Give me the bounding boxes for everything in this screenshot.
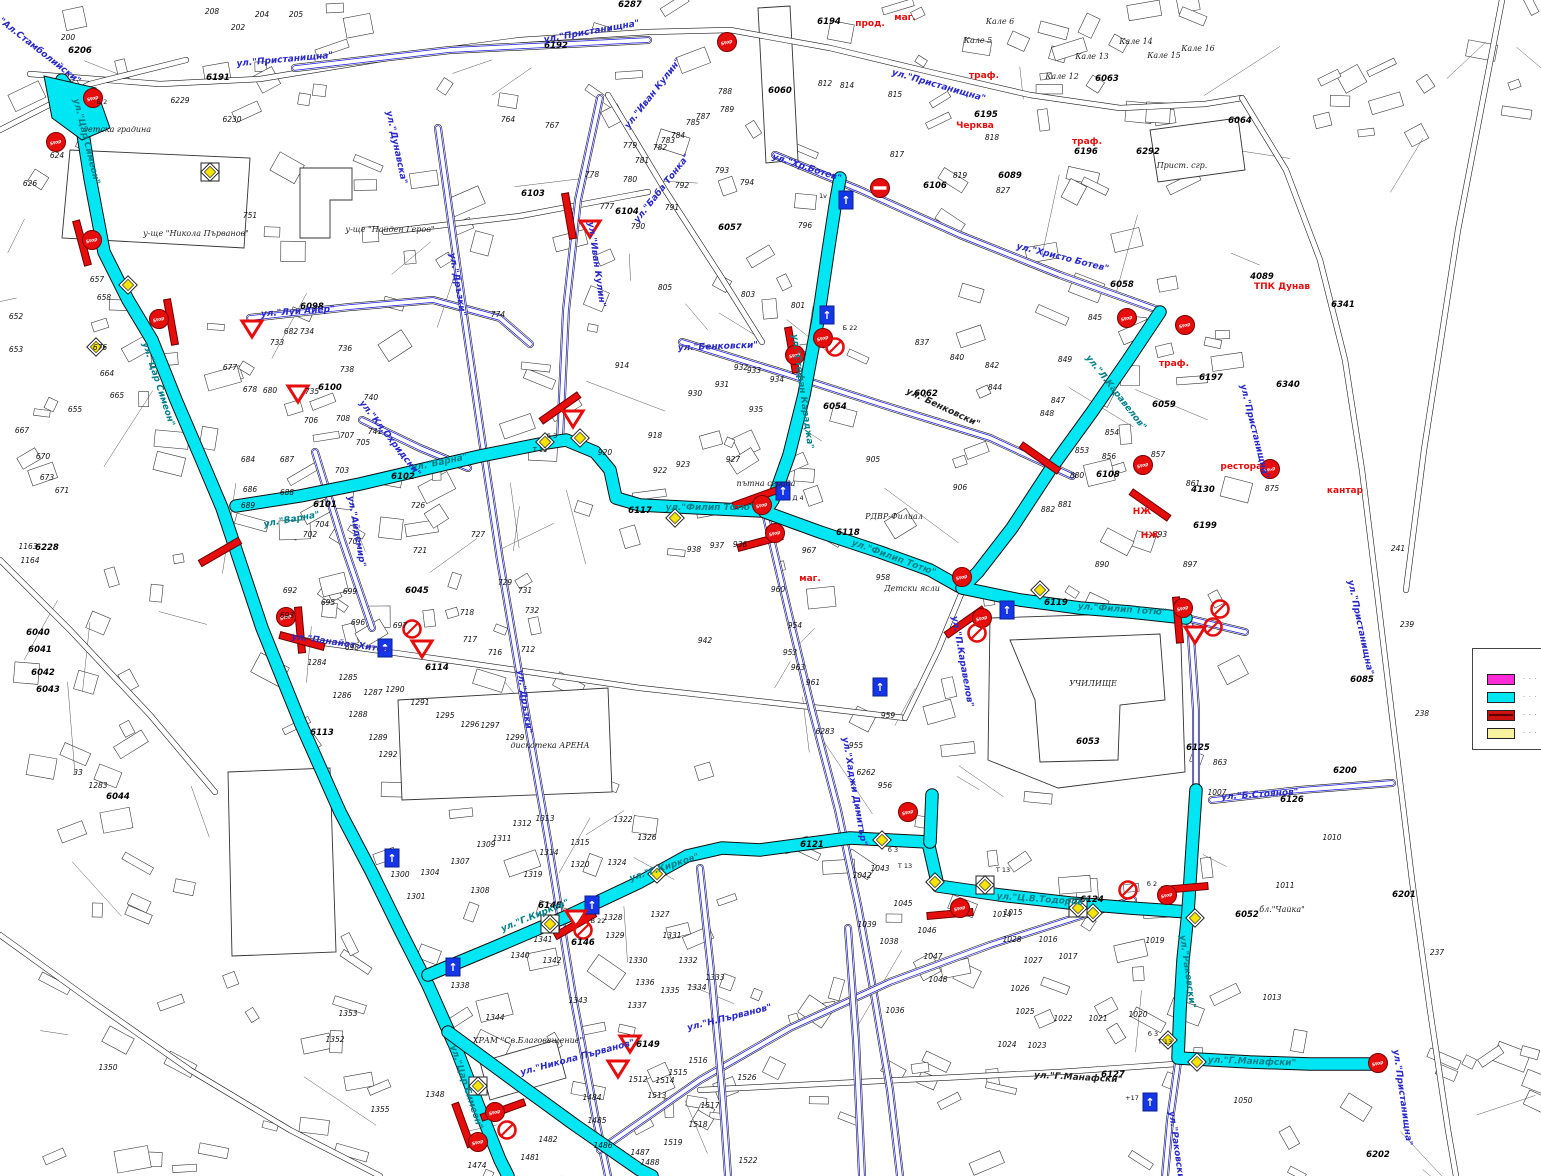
- parcel-number: 818: [985, 133, 1000, 142]
- parcel-number: 955: [849, 741, 864, 750]
- sign-code-label: б 3: [1148, 1030, 1158, 1038]
- landmark-building-outline: [228, 768, 336, 956]
- parcel-number: 1512: [628, 1075, 647, 1084]
- parcel-number: 1322: [613, 815, 632, 824]
- city-cadastral-map: ↑↑↑↑↑↑↑↑↑↑StopStopStopStopStopStopStopSt…: [0, 0, 1541, 1176]
- parcel-number: 1163: [18, 542, 37, 551]
- parcel-number: 1019: [1145, 936, 1164, 945]
- parcel-number: 1046: [917, 926, 936, 935]
- landmark-building-outline: [398, 688, 612, 800]
- road-segment-id: 6149: [636, 1040, 660, 1050]
- parcel-number: 738: [340, 365, 355, 374]
- road-segment-id: 6104: [615, 207, 639, 217]
- street-casing: [560, 98, 600, 440]
- parcel-number: 205: [289, 10, 304, 19]
- legend-item-restriction: · · · · · ·: [1487, 710, 1541, 721]
- parcel-number: 1292: [378, 750, 397, 759]
- parcel-number: 665: [110, 391, 125, 400]
- one-way-sign-icon: [873, 678, 887, 696]
- sign-code-label: +17: [1125, 1094, 1139, 1102]
- parcel-number: 716: [488, 648, 503, 657]
- parcel-number: 845: [1088, 313, 1103, 322]
- legend-item-network: · · · · · ·: [1487, 692, 1541, 703]
- parcel-number: 1315: [570, 838, 589, 847]
- parcel-number: 849: [1058, 355, 1073, 364]
- parcel-number: 905: [866, 455, 881, 464]
- stop-sign-icon: [1261, 460, 1280, 479]
- route-casing: [1178, 790, 1372, 1064]
- legend-swatch-red: [1487, 710, 1515, 721]
- legend-title: · ·: [1487, 659, 1541, 667]
- parcel-number: 780: [623, 175, 638, 184]
- one-way-sign-icon: [776, 482, 790, 500]
- parcel-number: 922: [653, 466, 668, 475]
- road-segment-id: 6199: [1193, 521, 1217, 531]
- street-name-label: ул."Иван Кулин": [623, 57, 684, 131]
- parcel-number: 796: [798, 221, 813, 230]
- parcel-number: 1036: [885, 1006, 904, 1015]
- stop-sign-icon: [83, 231, 102, 250]
- route-junction-area: [44, 76, 110, 140]
- parcel-number: 1515: [668, 1068, 687, 1077]
- parcel-number: 787: [696, 112, 711, 121]
- road-segment-id: 6057: [718, 223, 742, 233]
- parcel-number: 1312: [512, 819, 531, 828]
- one-way-sign-icon: [839, 191, 853, 209]
- yield-sign-icon: [288, 386, 308, 402]
- parcel-number: 1334: [687, 983, 706, 992]
- parcel-number: 241: [1391, 544, 1405, 553]
- parcel-number: 204: [255, 10, 270, 19]
- parcel-number: 861: [1186, 479, 1200, 488]
- road-segment-id: 6044: [106, 792, 130, 802]
- parcel-number: 718: [460, 608, 475, 617]
- yield-sign-icon: [620, 1036, 640, 1052]
- road-segment-id: 6287: [618, 0, 642, 10]
- road-segment-id: 6202: [1366, 1150, 1390, 1160]
- no-stopping-slash: [971, 627, 983, 639]
- parcel-number: 736: [338, 344, 353, 353]
- road-segment-id: 6103: [521, 189, 545, 199]
- parcel-number: 1482: [538, 1135, 557, 1144]
- sign-code-label: Т 13: [897, 862, 912, 870]
- parcel-number: 1289: [368, 733, 387, 742]
- parcel-number: 812: [818, 79, 833, 88]
- parcel-number: 740: [364, 393, 379, 402]
- parcel-number: 794: [740, 178, 755, 187]
- parcel-number: 937: [710, 541, 725, 550]
- parcel-number: 842: [985, 361, 1000, 370]
- stop-sign-icon: [786, 346, 805, 365]
- parcel-number: 1300: [390, 870, 409, 879]
- parcel-number: 686: [243, 485, 258, 494]
- no-stopping-slash: [406, 623, 418, 635]
- parcel-number: 653: [9, 345, 24, 354]
- road-segment-id: 6126: [1280, 795, 1304, 805]
- parcel-number: 1516: [688, 1056, 707, 1065]
- parcel-number: 1329: [605, 931, 624, 940]
- parcel-number: 1286: [332, 691, 351, 700]
- landmark-label: Кале 6: [985, 17, 1014, 26]
- parcel-number: 1011: [1275, 881, 1294, 890]
- road-segment-id: 4130: [1190, 485, 1215, 495]
- legend-item-route: · · · · · · ·: [1487, 674, 1541, 685]
- parcel-number: 664: [100, 369, 115, 378]
- landmark-building-outline: [758, 6, 798, 163]
- stop-sign-icon: [899, 803, 918, 822]
- parcel-number: 1338: [450, 981, 469, 990]
- one-way-sign-icon: [385, 849, 399, 867]
- parcel-number: 1287: [363, 688, 382, 697]
- street-surface: [1212, 783, 1392, 800]
- sign-code-label: б 2: [1147, 880, 1157, 888]
- parcel-number: 1309: [476, 840, 495, 849]
- sign-code-label: б 3: [888, 846, 898, 854]
- street-surface: [0, 935, 380, 1176]
- parcel-number: 1332: [678, 956, 697, 965]
- parcel-number: 790: [631, 222, 646, 231]
- parcel-number: 6229: [170, 96, 189, 105]
- road-segment-id: 6058: [1110, 280, 1134, 290]
- parcel-number: 1026: [1010, 984, 1029, 993]
- parcel-number: 202: [231, 23, 246, 32]
- parcel-number: 238: [1415, 709, 1430, 718]
- parcel-number: 1304: [420, 868, 439, 877]
- parcel-number: 1526: [737, 1073, 756, 1082]
- street-name-label: ул."Н.Първанов": [686, 1003, 773, 1034]
- parcel-number: 671: [55, 486, 69, 495]
- parcel-number: 704: [315, 520, 330, 529]
- parcel-number: 938: [687, 545, 702, 554]
- parcel-number: 890: [1095, 560, 1110, 569]
- landmark-label: Кале 16: [1180, 44, 1215, 53]
- street-casing: [1406, 0, 1502, 590]
- parcel-number: 1025: [1015, 1007, 1034, 1016]
- legend-item-priority: · · · · · ·: [1487, 728, 1541, 739]
- map-canvas[interactable]: ↑↑↑↑↑↑↑↑↑↑StopStopStopStopStopStopStopSt…: [0, 0, 1541, 1176]
- legend-swatch-yellow: [1487, 728, 1515, 739]
- one-way-sign-icon: [446, 958, 460, 976]
- road-segment-id: 6085: [1350, 675, 1374, 685]
- parcel-number: 854: [1105, 428, 1120, 437]
- road-segment-id: 6200: [1333, 766, 1357, 776]
- landmark-building-outline: [300, 168, 352, 238]
- parcel-number: 897: [1183, 560, 1198, 569]
- no-entry-bar: [874, 186, 887, 189]
- route-highlight: [1178, 790, 1372, 1064]
- parcel-number: 1015: [1003, 908, 1022, 917]
- road-closure-bar-icon: [295, 607, 306, 653]
- landmark-label: Детски ясли: [883, 584, 940, 593]
- parcel-number: 801: [791, 301, 805, 310]
- poi-red-label: ТПК Дунав: [1254, 282, 1310, 292]
- road-segment-id: 6052: [1235, 910, 1259, 920]
- road-closure-bar-icon: [1129, 489, 1171, 521]
- parcel-number: 692: [283, 586, 298, 595]
- poi-red-label: траф.: [1072, 137, 1102, 147]
- road-segment-id: 6206: [68, 46, 92, 56]
- parcel-number: 680: [263, 386, 278, 395]
- poi-red-label: траф.: [1159, 359, 1189, 369]
- parcel-number: 1327: [650, 910, 669, 919]
- parcel-number: 1324: [607, 858, 626, 867]
- yield-sign-icon: [242, 321, 262, 337]
- stop-sign-icon: [718, 33, 737, 52]
- road-segment-id: 6040: [26, 628, 50, 638]
- parcel-number: 1337: [627, 1001, 646, 1010]
- parcel-number: 684: [241, 455, 256, 464]
- parcel-number: 817: [890, 150, 905, 159]
- street-surface: [385, 192, 648, 232]
- parcel-number: 1284: [307, 658, 326, 667]
- parcel-number: 721: [413, 546, 427, 555]
- parcel-number: 706: [304, 416, 319, 425]
- parcel-number: 655: [68, 405, 83, 414]
- parcel-number: 1023: [1027, 1041, 1046, 1050]
- parcel-number: 726: [411, 501, 426, 510]
- street-surface: [905, 592, 962, 718]
- stop-sign-icon: [486, 1103, 505, 1122]
- parcel-number: 1348: [425, 1090, 444, 1099]
- parcel-number: 1285: [338, 673, 357, 682]
- road-segment-id: 6195: [974, 110, 998, 120]
- parcel-number: 785: [686, 118, 701, 127]
- parcel-number: 1022: [1053, 1014, 1072, 1023]
- stop-sign-icon: [814, 329, 833, 348]
- parcel-number: 1311: [492, 834, 511, 843]
- stop-sign-icon: [47, 133, 66, 152]
- parcel-number: 6262: [856, 768, 875, 777]
- parcel-number: 1522: [738, 1156, 757, 1165]
- sign-code-label: Т 13: [995, 866, 1010, 874]
- parcel-number: 1355: [370, 1105, 389, 1114]
- road-segment-id: 6100: [318, 383, 342, 393]
- parcel-number: 687: [280, 455, 295, 464]
- parcel-number: 734: [300, 327, 315, 336]
- parcel-number: 1481: [520, 1153, 539, 1162]
- road-segment-id: 6340: [1276, 380, 1300, 390]
- legend-swatch-cyan: [1487, 692, 1515, 703]
- road-segment-id: 6228: [35, 543, 59, 553]
- parcel-number: 1017: [1058, 952, 1077, 961]
- parcel-number: 958: [876, 573, 891, 582]
- road-segment-id: 4089: [1249, 272, 1274, 282]
- stop-sign-icon: [1118, 309, 1137, 328]
- parcel-number: 1335: [660, 986, 679, 995]
- parcel-number: 1164: [20, 556, 39, 565]
- parcel-number: 1328: [603, 913, 622, 922]
- parcel-number: 935: [749, 405, 764, 414]
- stop-sign-icon: [150, 310, 169, 329]
- parcel-number: 803: [741, 290, 756, 299]
- parcel-number: 208: [205, 7, 220, 16]
- street-name-label: ул."Дунавска": [383, 110, 408, 185]
- parcel-number: 967: [802, 546, 817, 555]
- parcel-number: 956: [878, 781, 893, 790]
- parcel-number: 1474: [467, 1161, 486, 1170]
- map-legend: · · · · · · · · · · · · · · · · · · · · …: [1472, 648, 1541, 750]
- parcel-number: 840: [950, 353, 965, 362]
- poi-red-label: маг.: [799, 574, 821, 584]
- parcel-number: 727: [471, 530, 486, 539]
- parcel-number: 881: [1058, 500, 1072, 509]
- parcel-number: 764: [501, 115, 516, 124]
- landmark-label: Кале 15: [1146, 51, 1181, 60]
- parcel-number: 1330: [628, 956, 647, 965]
- parcel-number: 847: [1051, 396, 1066, 405]
- stop-sign-icon: [951, 899, 970, 918]
- parcel-number: 239: [1400, 620, 1415, 629]
- parcel-number: 624: [50, 151, 65, 160]
- parcel-number: 1045: [893, 899, 912, 908]
- street-name-label: ул."Пристанищна": [1345, 579, 1375, 676]
- road-segment-id: 6043: [36, 685, 60, 695]
- parcel-number: 857: [1151, 450, 1166, 459]
- stop-sign-icon: [953, 568, 972, 587]
- stop-sign-icon: [1158, 886, 1177, 905]
- parcel-number: 805: [658, 283, 673, 292]
- parcel-number: 788: [718, 87, 733, 96]
- parcel-number: 815: [888, 90, 903, 99]
- parcel-number: 814: [840, 81, 855, 90]
- stop-sign-icon: [766, 524, 785, 543]
- parcel-number: 906: [953, 483, 968, 492]
- parcel-number: 930: [688, 389, 703, 398]
- poi-red-label: прод.: [855, 19, 885, 29]
- street-casing: [1242, 98, 1456, 1176]
- stop-sign-icon: [1174, 599, 1193, 618]
- parcel-number: 652: [9, 312, 24, 321]
- parcel-number: 1301: [406, 892, 425, 901]
- parcel-number: 732: [525, 606, 540, 615]
- stop-sign-icon: [1176, 316, 1195, 335]
- parcel-number: 1336: [635, 978, 654, 987]
- parcel-number: 1014: [992, 910, 1011, 919]
- parcel-number: 931: [715, 380, 729, 389]
- parcel-number: 875: [1265, 484, 1280, 493]
- parcel-number: 789: [720, 105, 735, 114]
- street-surface: [1242, 98, 1456, 1176]
- landmark-building-outline: [1150, 118, 1245, 182]
- yield-sign-icon: [608, 1061, 628, 1077]
- stop-sign-icon: [1134, 456, 1153, 475]
- one-way-sign-icon: [1000, 601, 1014, 619]
- road-segment-id: 6089: [998, 171, 1022, 181]
- parcel-number: 1290: [385, 685, 404, 694]
- parcel-number: 853: [1075, 446, 1090, 455]
- road-segment-id: 6045: [405, 586, 429, 596]
- sign-code-label: 1v: [819, 192, 827, 200]
- parcel-number: 1487: [630, 1148, 649, 1157]
- parcel-number: 837: [915, 338, 930, 347]
- stop-sign-icon: [277, 608, 296, 627]
- parcel-number: 1519: [663, 1138, 682, 1147]
- parcel-number: 827: [996, 186, 1011, 195]
- route-highlight: [765, 178, 962, 588]
- stop-sign-icon: [753, 496, 772, 515]
- parcel-number: 717: [463, 635, 478, 644]
- parcel-number: 703: [335, 466, 350, 475]
- route-highlight: [930, 795, 932, 842]
- one-way-sign-icon: [378, 639, 392, 657]
- parcel-number: 1288: [348, 710, 367, 719]
- road-segment-id: 6114: [425, 663, 449, 673]
- stop-sign-icon: [84, 89, 103, 108]
- parcel-number: 1010: [1322, 833, 1341, 842]
- parcel-number: 667: [15, 426, 30, 435]
- street-casing: [0, 935, 380, 1176]
- no-stopping-slash: [501, 1124, 513, 1136]
- parcel-number: 793: [715, 166, 730, 175]
- parcel-number: 882: [1041, 505, 1056, 514]
- one-way-sign-icon: [1143, 1093, 1157, 1111]
- one-way-sign-icon: [820, 306, 834, 324]
- parcel-number: 942: [698, 636, 713, 645]
- parcel-number: 923: [676, 460, 691, 469]
- parcel-number: 705: [356, 438, 371, 447]
- parcel-number: 1016: [1038, 935, 1057, 944]
- parcel-number: 1308: [470, 886, 489, 895]
- landmark-label: бл."Чайка": [1259, 905, 1305, 914]
- parcel-number: 914: [615, 361, 630, 370]
- stop-sign-icon: [1369, 1054, 1388, 1073]
- road-segment-id: 6196: [1074, 147, 1098, 157]
- parcel-number: 767: [545, 121, 560, 130]
- road-segment-id: 6106: [923, 181, 947, 191]
- road-segment-id: 6062: [914, 389, 938, 399]
- yield-sign-icon: [563, 411, 583, 427]
- parcel-number: 707: [340, 431, 355, 440]
- parcel-number: 1027: [1023, 956, 1042, 965]
- poi-red-label: кантар: [1327, 486, 1364, 496]
- street-surface: [608, 95, 762, 342]
- stop-sign-icon: [469, 1133, 488, 1152]
- parcel-number: 708: [336, 414, 351, 423]
- parcel-number: 200: [61, 33, 76, 42]
- parcel-number: 1038: [879, 937, 898, 946]
- parcel-number: 657: [90, 275, 105, 284]
- sign-code-label: Д 4: [792, 494, 803, 502]
- parcel-number: 918: [648, 431, 663, 440]
- parcel-number: 678: [243, 385, 258, 394]
- parcel-number: 1024: [997, 1040, 1016, 1049]
- street-name-label: ул."Пристанищна": [1390, 1049, 1413, 1146]
- parcel-number: 1307: [450, 857, 469, 866]
- street-surface: [700, 868, 728, 1176]
- poi-red-label: Черква: [956, 121, 994, 131]
- parcel-number: 237: [1430, 948, 1445, 957]
- parcel-number: 1350: [98, 1063, 117, 1072]
- legend-swatch-magenta: [1487, 674, 1515, 685]
- parcel-number: 1013: [1262, 993, 1281, 1002]
- parcel-number: 1050: [1233, 1096, 1252, 1105]
- parcel-number: 863: [1213, 758, 1228, 767]
- sign-code-label: Б 22: [843, 324, 858, 332]
- parcel-number: 848: [1040, 409, 1055, 418]
- parcel-number: 712: [521, 645, 536, 654]
